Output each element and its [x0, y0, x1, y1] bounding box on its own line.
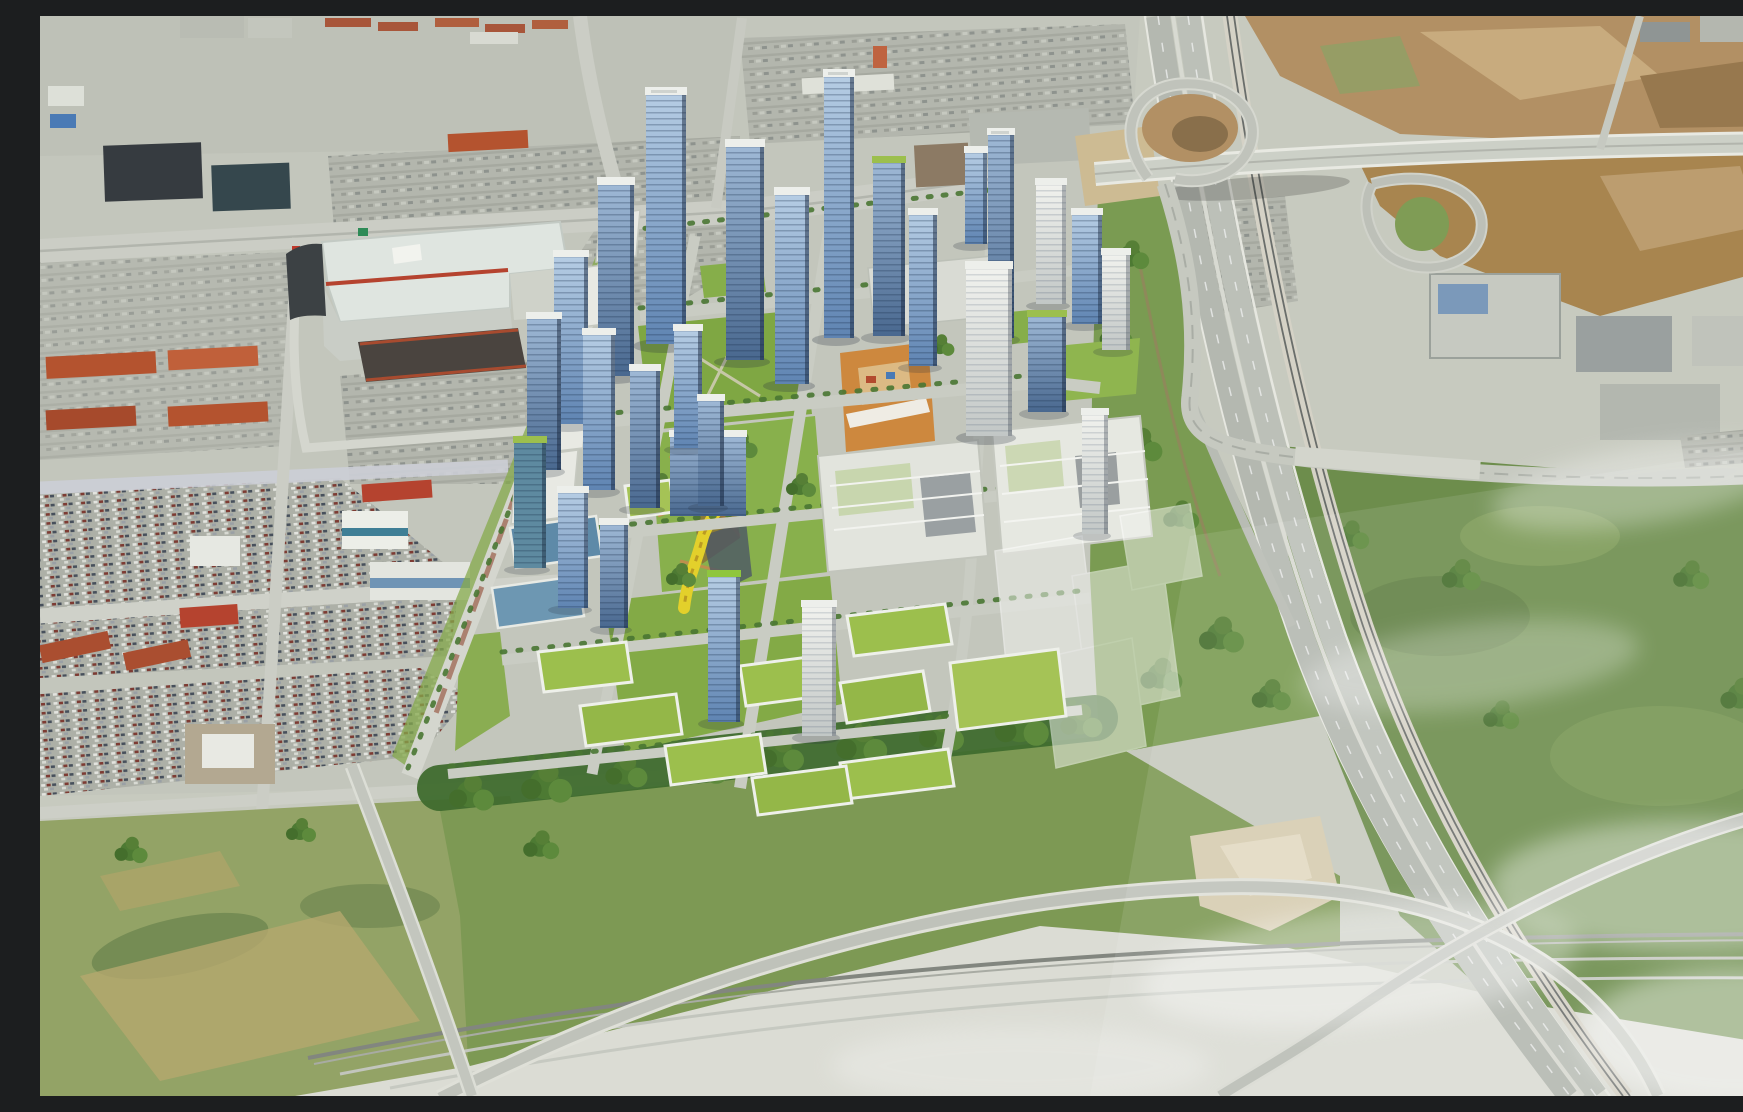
aerial-rendering: Aerial rendering of a transit-oriented m…: [40, 16, 1743, 1096]
aerial-scene: Aerial rendering of a transit-oriented m…: [40, 16, 1743, 1096]
loop-green: [1395, 197, 1449, 251]
mall-parking-deck: [286, 244, 326, 320]
podium-block-west: [818, 440, 988, 572]
